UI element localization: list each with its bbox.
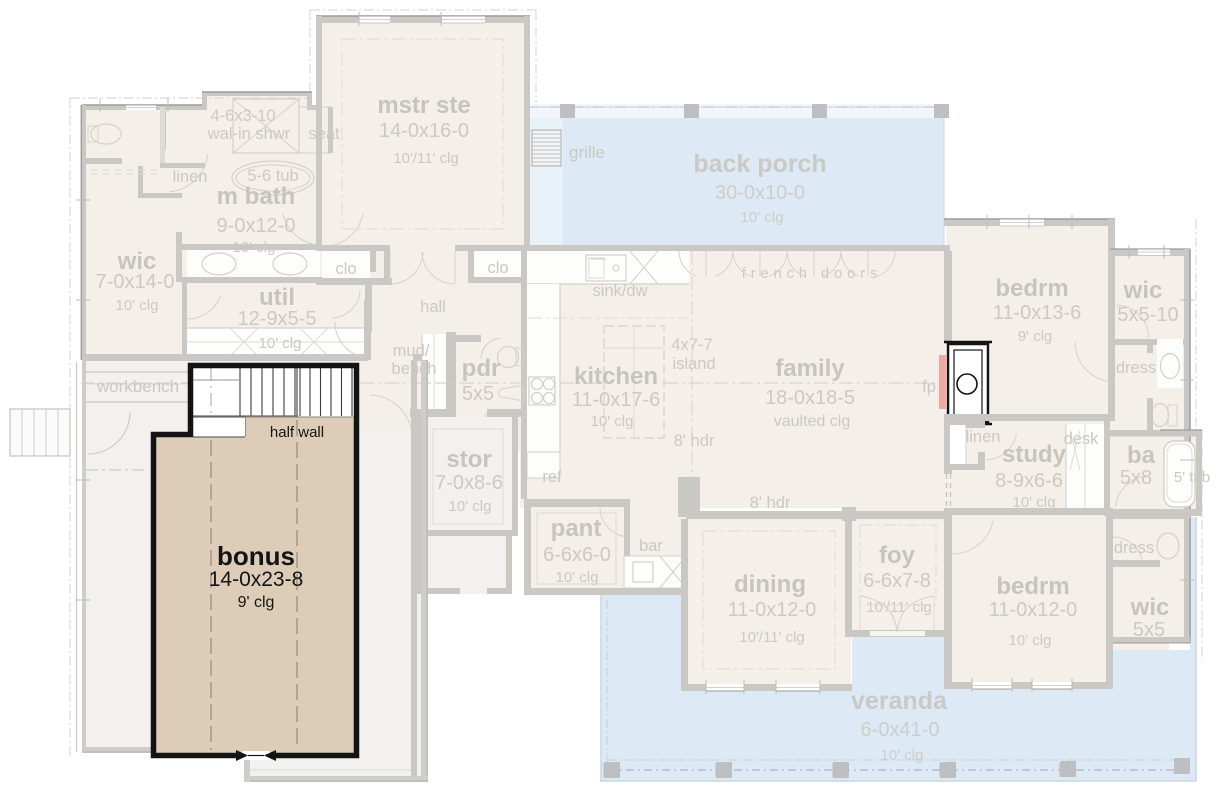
svg-text:5x5-10: 5x5-10	[1117, 304, 1178, 326]
svg-text:bar: bar	[639, 537, 663, 555]
svg-text:5x8: 5x8	[1120, 467, 1152, 489]
svg-text:10' clg: 10' clg	[591, 413, 634, 430]
svg-text:10' clg: 10' clg	[449, 498, 492, 515]
svg-text:workbench: workbench	[96, 377, 179, 396]
svg-text:9' clg: 9' clg	[238, 594, 275, 611]
svg-text:study: study	[1002, 441, 1067, 468]
svg-text:foy: foy	[879, 542, 916, 569]
svg-text:10' clg: 10' clg	[881, 747, 924, 764]
svg-text:vaulted clg: vaulted clg	[774, 413, 851, 430]
svg-text:mstr ste: mstr ste	[377, 92, 470, 119]
svg-text:10' clg: 10' clg	[233, 239, 276, 256]
svg-text:bedrm: bedrm	[995, 275, 1068, 302]
svg-text:seat: seat	[308, 125, 340, 143]
svg-text:11-0x13-6: 11-0x13-6	[993, 302, 1082, 324]
svg-text:hall: hall	[420, 298, 446, 316]
svg-text:back porch: back porch	[693, 150, 826, 178]
svg-text:dining: dining	[734, 571, 806, 598]
svg-text:8' hdr: 8' hdr	[674, 432, 715, 450]
svg-text:ref: ref	[542, 468, 562, 486]
svg-text:9' clg: 9' clg	[1018, 328, 1053, 345]
svg-text:wal-in shwr: wal-in shwr	[207, 125, 291, 143]
svg-text:10' clg: 10' clg	[259, 335, 302, 352]
svg-text:bedrm: bedrm	[996, 573, 1069, 600]
svg-text:4-6x3-10: 4-6x3-10	[210, 107, 275, 125]
svg-text:12-9x5-5: 12-9x5-5	[238, 308, 317, 330]
svg-text:18-0x18-5: 18-0x18-5	[765, 387, 855, 409]
svg-text:dress: dress	[1116, 359, 1156, 377]
svg-text:linen: linen	[966, 428, 1001, 446]
svg-text:french doors: french doors	[742, 266, 883, 282]
svg-text:ba: ba	[1127, 442, 1156, 469]
svg-text:10'/11' clg: 10'/11' clg	[866, 599, 932, 616]
svg-text:linen: linen	[173, 168, 208, 186]
svg-text:stor: stor	[446, 446, 491, 473]
svg-text:fp: fp	[922, 378, 936, 396]
svg-text:11-0x12-0: 11-0x12-0	[989, 599, 1078, 621]
svg-text:clo: clo	[335, 260, 356, 278]
svg-text:bonus: bonus	[217, 541, 295, 571]
svg-text:dress: dress	[1114, 539, 1154, 557]
svg-text:5-6 tub: 5-6 tub	[247, 167, 298, 185]
svg-text:pant: pant	[551, 515, 602, 542]
svg-text:kitchen: kitchen	[574, 363, 658, 390]
svg-text:9-0x12-0: 9-0x12-0	[217, 215, 296, 237]
svg-text:11-0x12-0: 11-0x12-0	[728, 599, 817, 621]
svg-text:10' clg: 10' clg	[556, 569, 599, 586]
svg-text:pdr: pdr	[462, 355, 501, 382]
svg-text:10'/11' clg: 10'/11' clg	[393, 150, 459, 167]
svg-text:half wall: half wall	[270, 424, 324, 441]
svg-text:5' tub: 5' tub	[1174, 469, 1210, 486]
svg-text:10'/11' clg: 10'/11' clg	[739, 629, 805, 646]
svg-text:wic: wic	[1123, 277, 1163, 304]
svg-text:7-0x8-6: 7-0x8-6	[435, 472, 503, 494]
svg-text:grille: grille	[569, 143, 605, 162]
svg-text:desk: desk	[1064, 430, 1100, 448]
svg-text:5x5: 5x5	[462, 383, 494, 405]
svg-text:6-0x41-0: 6-0x41-0	[861, 719, 940, 741]
svg-text:30-0x10-0: 30-0x10-0	[715, 182, 805, 204]
svg-text:util: util	[259, 284, 295, 311]
svg-text:sink/dw: sink/dw	[592, 282, 647, 300]
svg-text:8' hdr: 8' hdr	[750, 494, 791, 512]
svg-text:5x5: 5x5	[1133, 619, 1165, 641]
svg-text:island: island	[672, 355, 715, 373]
svg-text:mud/: mud/	[393, 342, 430, 360]
svg-text:m bath: m bath	[217, 183, 296, 210]
svg-text:10' clg: 10' clg	[741, 209, 784, 226]
svg-text:14-0x16-0: 14-0x16-0	[379, 120, 469, 142]
svg-text:6-6x7-8: 6-6x7-8	[863, 570, 931, 592]
svg-text:7-0x14-0: 7-0x14-0	[96, 271, 175, 293]
svg-text:wic: wic	[1130, 594, 1170, 621]
svg-text:clo: clo	[487, 259, 508, 277]
svg-text:6-6x6-0: 6-6x6-0	[543, 544, 611, 566]
svg-text:family: family	[775, 355, 845, 382]
svg-text:11-0x17-6: 11-0x17-6	[572, 389, 661, 411]
svg-text:10' clg: 10' clg	[1009, 632, 1052, 649]
svg-text:10' clg: 10' clg	[116, 297, 159, 314]
svg-text:14-0x23-8: 14-0x23-8	[209, 568, 304, 591]
svg-text:8-9x6-6: 8-9x6-6	[995, 470, 1063, 492]
svg-text:veranda: veranda	[851, 687, 948, 715]
